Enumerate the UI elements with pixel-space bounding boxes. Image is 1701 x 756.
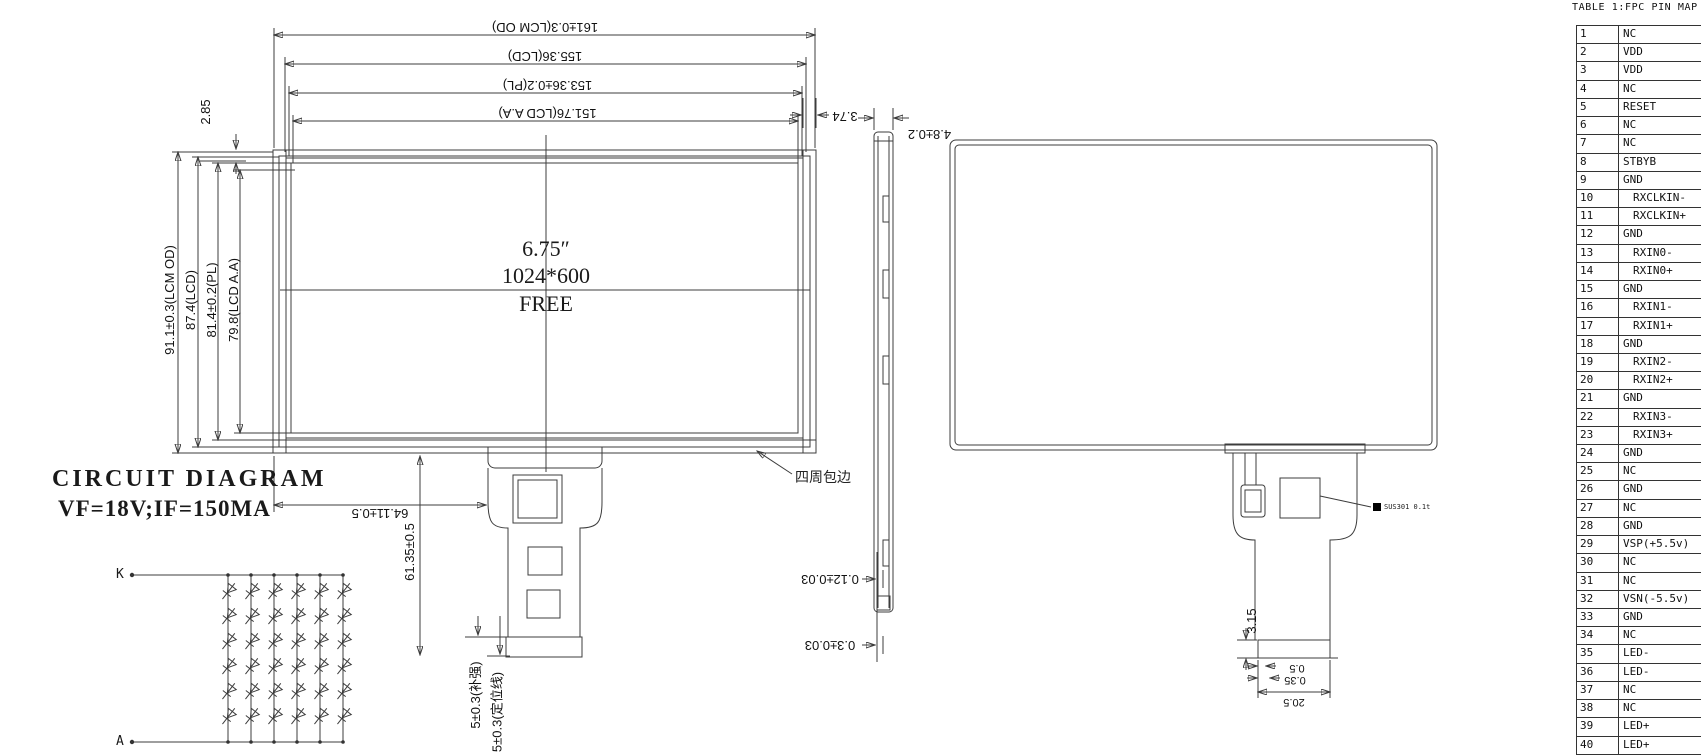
pin-name: RXCLKIN- xyxy=(1619,190,1701,207)
pin-row: 38NC xyxy=(1577,699,1701,717)
pin-number: 33 xyxy=(1577,609,1619,626)
dim-film: 0.12±0.03 xyxy=(799,572,861,586)
pin-number: 20 xyxy=(1577,372,1619,389)
pin-name: LED+ xyxy=(1619,718,1701,735)
pin-row: 5RESET xyxy=(1577,98,1701,116)
pin-number: 39 xyxy=(1577,718,1619,735)
circuit-diagram xyxy=(130,573,354,744)
pin-name: GND xyxy=(1619,518,1701,535)
pin-row: 16RXIN1- xyxy=(1577,298,1701,316)
pin-number: 8 xyxy=(1577,154,1619,171)
dim-corner-right: 3.74 xyxy=(823,109,867,123)
pin-row: 8STBYB xyxy=(1577,153,1701,171)
pin-name: RXIN1+ xyxy=(1619,318,1701,335)
pin-row: 22RXIN3- xyxy=(1577,408,1701,426)
pin-number: 16 xyxy=(1577,299,1619,316)
pin-row: 21GND xyxy=(1577,389,1701,407)
circuit-condition: VF=18V;IF=150MA xyxy=(58,496,271,522)
pin-name: NC xyxy=(1619,627,1701,644)
pin-number: 26 xyxy=(1577,481,1619,498)
dim-tape: 0.3±0.03 xyxy=(802,638,858,652)
pin-row: 9GND xyxy=(1577,171,1701,189)
pin-number: 13 xyxy=(1577,245,1619,262)
dim-pl-width: 153.36±0.2(PL) xyxy=(475,78,620,92)
led-symbol xyxy=(219,680,239,702)
dim-aa-height: 79.8(LCD A.A) xyxy=(227,230,241,370)
pin-name: RXIN2- xyxy=(1619,354,1701,371)
pin-number: 14 xyxy=(1577,263,1619,280)
pin-name: NC xyxy=(1619,26,1701,43)
pin-name: GND xyxy=(1619,172,1701,189)
led-symbol xyxy=(288,705,308,727)
pin-row: 35LED- xyxy=(1577,644,1701,662)
pin-row: 18GND xyxy=(1577,335,1701,353)
dim-thickness: 4.8±0.2 xyxy=(902,127,957,141)
dim-lcd-width: 155.36(LCD) xyxy=(485,49,605,63)
pin-number: 12 xyxy=(1577,226,1619,243)
pin-row: 34NC xyxy=(1577,626,1701,644)
pin-name: NC xyxy=(1619,81,1701,98)
pin-name: VSP(+5.5v) xyxy=(1619,536,1701,553)
dim-finger: 0.35 xyxy=(1280,673,1310,687)
pin-row: 15GND xyxy=(1577,280,1701,298)
led-symbol xyxy=(311,655,331,677)
led-symbol xyxy=(219,580,239,602)
pin-name: STBYB xyxy=(1619,154,1701,171)
pin-row: 10RXCLKIN- xyxy=(1577,189,1701,207)
pin-number: 7 xyxy=(1577,135,1619,152)
pin-number: 22 xyxy=(1577,409,1619,426)
pin-number: 10 xyxy=(1577,190,1619,207)
pin-row: 31NC xyxy=(1577,572,1701,590)
pin-name: LED+ xyxy=(1619,737,1701,754)
pin-name: LED- xyxy=(1619,664,1701,681)
pin-row: 30NC xyxy=(1577,553,1701,571)
pin-number: 30 xyxy=(1577,554,1619,571)
pin-row: 11RXCLKIN+ xyxy=(1577,207,1701,225)
pin-number: 2 xyxy=(1577,44,1619,61)
led-symbol xyxy=(265,630,285,652)
pin-number: 28 xyxy=(1577,518,1619,535)
pin-row: 36LED- xyxy=(1577,663,1701,681)
led-symbol xyxy=(288,605,308,627)
circuit-title: CIRCUIT DIAGRAM xyxy=(52,466,327,493)
led-symbol xyxy=(311,580,331,602)
pin-name: NC xyxy=(1619,135,1701,152)
panel-size-label: 6.75″ xyxy=(466,236,626,262)
cathode-label: K xyxy=(116,567,124,582)
pin-row: 20RXIN2+ xyxy=(1577,371,1701,389)
led-symbol xyxy=(219,655,239,677)
led-symbol xyxy=(334,655,354,677)
pin-name: NC xyxy=(1619,500,1701,517)
stiffener-legend-swatch xyxy=(1373,503,1381,511)
pin-name: VDD xyxy=(1619,44,1701,61)
anode-label: A xyxy=(116,734,124,749)
pin-row: 7NC xyxy=(1577,134,1701,152)
pin-number: 1 xyxy=(1577,26,1619,43)
led-symbol xyxy=(334,605,354,627)
pin-number: 24 xyxy=(1577,445,1619,462)
led-symbol xyxy=(242,605,262,627)
pin-name: GND xyxy=(1619,481,1701,498)
panel-resolution-label: 1024*600 xyxy=(466,263,626,289)
pin-row: 17RXIN1+ xyxy=(1577,317,1701,335)
pin-number: 18 xyxy=(1577,336,1619,353)
pin-row: 27NC xyxy=(1577,499,1701,517)
edge-wrap-note: 四周包边 xyxy=(795,467,851,487)
pin-name: RXIN0- xyxy=(1619,245,1701,262)
pin-number: 36 xyxy=(1577,664,1619,681)
pin-row: 25NC xyxy=(1577,462,1701,480)
led-symbol xyxy=(288,680,308,702)
led-symbol xyxy=(311,630,331,652)
pin-number: 37 xyxy=(1577,682,1619,699)
pin-number: 15 xyxy=(1577,281,1619,298)
pin-name: NC xyxy=(1619,682,1701,699)
dim-bezel-top: 2.85 xyxy=(199,87,213,137)
dim-lcd-height: 87.4(LCD) xyxy=(184,240,198,360)
pin-row: 26GND xyxy=(1577,480,1701,498)
led-symbol xyxy=(334,580,354,602)
pin-number: 19 xyxy=(1577,354,1619,371)
pin-number: 5 xyxy=(1577,99,1619,116)
pin-name: RESET xyxy=(1619,99,1701,116)
pin-row: 39LED+ xyxy=(1577,717,1701,735)
pin-name: RXIN2+ xyxy=(1619,372,1701,389)
dim-lcm-od-width: 161±0.3(LCM OD) xyxy=(465,20,625,34)
pin-row: 23RXIN3+ xyxy=(1577,426,1701,444)
led-symbol xyxy=(219,605,239,627)
led-symbol xyxy=(219,630,239,652)
led-symbol xyxy=(242,580,262,602)
pin-number: 6 xyxy=(1577,117,1619,134)
pin-name: GND xyxy=(1619,609,1701,626)
pin-name: GND xyxy=(1619,281,1701,298)
side-view xyxy=(858,108,909,662)
pin-row: 12GND xyxy=(1577,225,1701,243)
pin-number: 40 xyxy=(1577,737,1619,754)
led-symbol xyxy=(311,680,331,702)
pin-row: 2VDD xyxy=(1577,43,1701,61)
pin-number: 3 xyxy=(1577,62,1619,79)
pin-name: NC xyxy=(1619,554,1701,571)
led-symbol xyxy=(288,655,308,677)
pin-name: NC xyxy=(1619,117,1701,134)
dim-pl-height: 81.4±0.2(PL) xyxy=(205,230,219,370)
pin-name: NC xyxy=(1619,463,1701,480)
led-symbol xyxy=(242,630,262,652)
pin-name: NC xyxy=(1619,573,1701,590)
pin-name: VSN(-5.5v) xyxy=(1619,591,1701,608)
pin-number: 31 xyxy=(1577,573,1619,590)
stiffener-label: SUS301 0.1t xyxy=(1384,503,1430,511)
pin-name: LED- xyxy=(1619,645,1701,662)
pin-row: 13RXIN0- xyxy=(1577,244,1701,262)
dim-fpc-length: 61.35±0.5 xyxy=(403,512,417,592)
pin-number: 38 xyxy=(1577,700,1619,717)
led-symbol xyxy=(242,705,262,727)
pin-name: RXIN0+ xyxy=(1619,263,1701,280)
pin-row: 33GND xyxy=(1577,608,1701,626)
led-symbol xyxy=(288,630,308,652)
led-symbol xyxy=(311,705,331,727)
led-symbol xyxy=(265,605,285,627)
pin-number: 34 xyxy=(1577,627,1619,644)
pin-row: 1NC xyxy=(1577,26,1701,43)
led-symbol xyxy=(265,705,285,727)
pin-name: VDD xyxy=(1619,62,1701,79)
pin-number: 9 xyxy=(1577,172,1619,189)
pin-number: 25 xyxy=(1577,463,1619,480)
pin-name: RXIN1- xyxy=(1619,299,1701,316)
pin-table-title: TABLE 1:FPC PIN MAP xyxy=(1572,2,1701,13)
pin-row: 37NC xyxy=(1577,681,1701,699)
pin-row: 40LED+ xyxy=(1577,736,1701,754)
pin-row: 24GND xyxy=(1577,444,1701,462)
pin-name: RXIN3+ xyxy=(1619,427,1701,444)
led-symbol xyxy=(311,605,331,627)
led-symbol xyxy=(265,680,285,702)
pin-row: 28GND xyxy=(1577,517,1701,535)
pin-number: 27 xyxy=(1577,500,1619,517)
pin-row: 6NC xyxy=(1577,116,1701,134)
pin-row: 4NC xyxy=(1577,80,1701,98)
pin-name: RXIN3- xyxy=(1619,409,1701,426)
front-dimensions xyxy=(172,28,829,656)
led-symbol xyxy=(219,705,239,727)
dim-positioning: 5±0.3(定位线) xyxy=(491,665,505,756)
pin-number: 23 xyxy=(1577,427,1619,444)
pin-name: GND xyxy=(1619,226,1701,243)
front-fpc-tail xyxy=(488,447,602,657)
pin-number: 4 xyxy=(1577,81,1619,98)
panel-brand-label: FREE xyxy=(466,291,626,317)
pin-name: GND xyxy=(1619,390,1701,407)
pin-number: 32 xyxy=(1577,591,1619,608)
pin-row: 14RXIN0+ xyxy=(1577,262,1701,280)
pin-name: GND xyxy=(1619,445,1701,462)
pin-number: 21 xyxy=(1577,390,1619,407)
pin-number: 29 xyxy=(1577,536,1619,553)
back-view xyxy=(950,140,1437,698)
dim-lcm-od-height: 91.1±0.3(LCM OD) xyxy=(163,220,177,380)
pin-name: GND xyxy=(1619,336,1701,353)
pin-row: 32VSN(-5.5v) xyxy=(1577,590,1701,608)
pin-row: 29VSP(+5.5v) xyxy=(1577,535,1701,553)
led-symbol xyxy=(334,630,354,652)
dim-aa-width: 151.76(LCD A.A) xyxy=(475,106,620,120)
led-symbol xyxy=(265,655,285,677)
dim-tail: 3.15 xyxy=(1245,606,1259,636)
pin-name: RXCLKIN+ xyxy=(1619,208,1701,225)
pin-row: 3VDD xyxy=(1577,61,1701,79)
led-symbol xyxy=(242,680,262,702)
engineering-drawing-sheet: 161±0.3(LCM OD) 155.36(LCD) 153.36±0.2(P… xyxy=(0,0,1701,756)
pin-number: 11 xyxy=(1577,208,1619,225)
led-symbol xyxy=(334,705,354,727)
led-symbol xyxy=(242,655,262,677)
fpc-pin-table: 1NC2VDD3VDD4NC5RESET6NC7NC8STBYB9GND10RX… xyxy=(1576,25,1701,755)
pin-name: NC xyxy=(1619,700,1701,717)
pin-row: 19RXIN2- xyxy=(1577,353,1701,371)
led-symbol xyxy=(288,580,308,602)
led-symbol xyxy=(265,580,285,602)
pin-number: 17 xyxy=(1577,318,1619,335)
led-symbol xyxy=(334,680,354,702)
dim-connector-width: 20.5 xyxy=(1277,695,1311,709)
dim-stiffener: 5±0.3(补强) xyxy=(469,650,483,740)
pin-number: 35 xyxy=(1577,645,1619,662)
